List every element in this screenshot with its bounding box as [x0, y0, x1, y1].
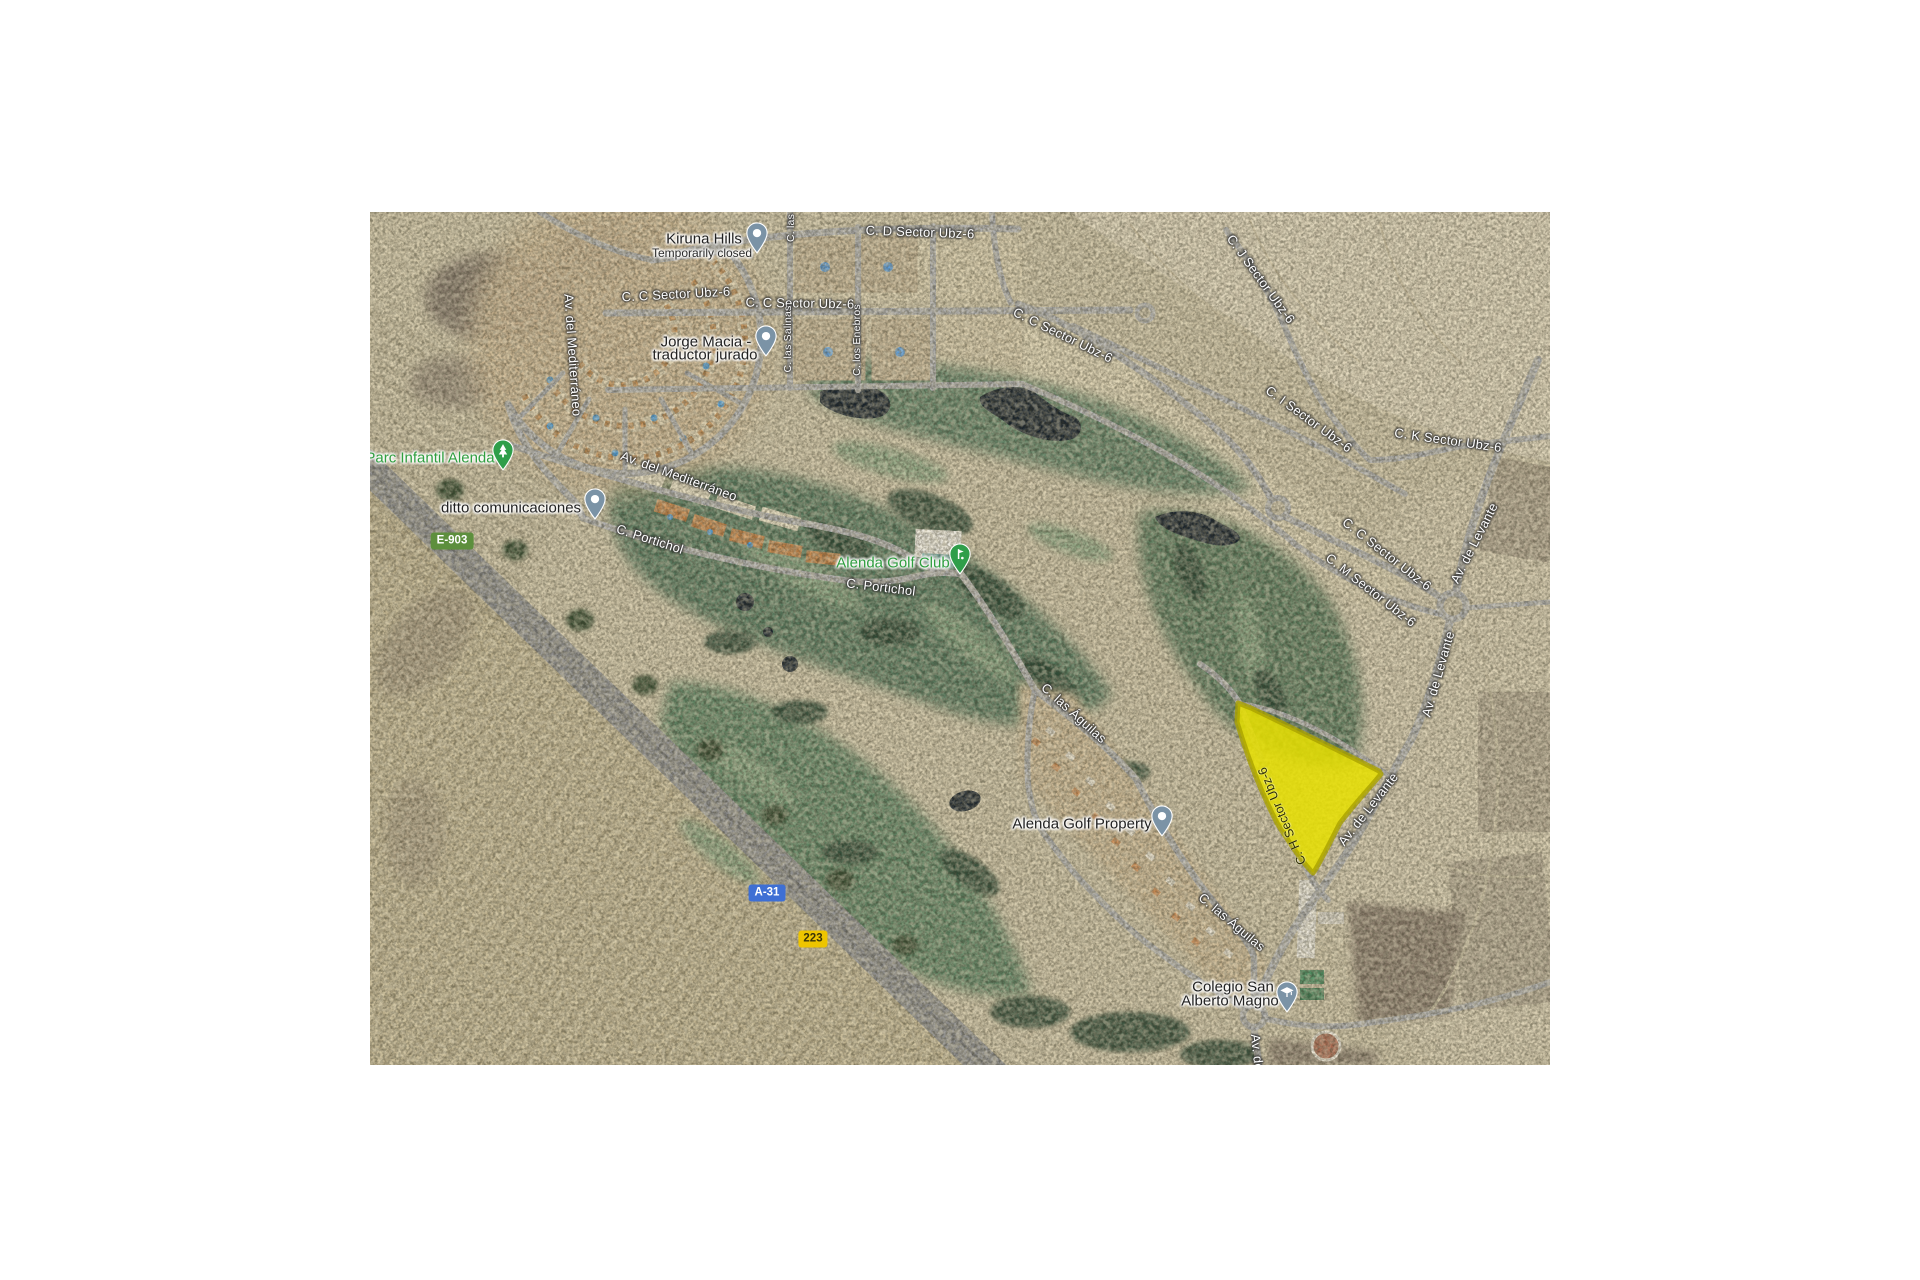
poi-colegio-line2: Alberto Magno — [1181, 993, 1279, 1010]
road-label: C. las Águilas — [1038, 680, 1109, 746]
parc-infantil-tree-pin[interactable] — [492, 439, 515, 471]
page: C. D Sector Ubz-6 C. C Sector Ubz-6 C. C… — [0, 0, 1920, 1280]
satellite-map[interactable]: C. D Sector Ubz-6 C. C Sector Ubz-6 C. C… — [370, 212, 1550, 1065]
road-label: C. las — [785, 214, 797, 242]
ditto-pin[interactable] — [584, 488, 607, 520]
road-label: Av. del Mediterráneo — [561, 293, 585, 417]
road-label: Av. del Mediterráneo — [619, 448, 739, 504]
road-label: C. D Sector Ubz-6 — [865, 223, 974, 242]
road-label: C. K Sector Ubz-6 — [1393, 425, 1502, 455]
road-label: Av. de Levante — [1419, 629, 1458, 718]
jorge-macia-pin[interactable] — [755, 325, 778, 357]
road-label: C. C Sector Ubz-6 — [745, 295, 854, 312]
poi-kiruna-hills-status: Temporarily closed — [652, 246, 752, 260]
road-label: Av. de Levante — [1447, 500, 1500, 586]
poi-golf-club-name: Alenda Golf Club — [836, 555, 949, 572]
road-label: C. los Enebros — [851, 304, 863, 376]
road-label: C. I Sector Ubz-6 — [1263, 383, 1355, 456]
road-label: C. H Sector Ubz-6 — [1255, 765, 1309, 867]
road-label: C. las Salinas — [782, 306, 794, 373]
route-shield-e903: E-903 — [431, 533, 474, 550]
poi-jorge-macia-line2: traductor jurado — [652, 347, 757, 364]
poi-kiruna-hills-name: Kiruna Hills — [666, 231, 742, 248]
poi-parc-infantil-name: Parc Infantil Alenda — [370, 450, 495, 467]
road-label: Av. de Levante — [1335, 770, 1401, 849]
poi-golf-property-name: Alenda Golf Property — [1012, 816, 1151, 833]
road-label: C. las Águilas — [1196, 890, 1269, 954]
road-label: C. C Sector Ubz-6 — [621, 284, 731, 305]
road-label: C. C Sector Ubz-6 — [1011, 304, 1115, 365]
alenda-golf-club-pin[interactable] — [949, 543, 972, 575]
kiruna-hills-pin[interactable] — [746, 222, 769, 254]
route-shield-a31: A-31 — [749, 885, 786, 902]
road-label: C. J Sector Ubz-6 — [1224, 232, 1298, 327]
route-shield-223: 223 — [798, 931, 827, 948]
poi-ditto-name: ditto comunicaciones — [441, 500, 581, 517]
road-label: C. Portichol — [615, 521, 686, 557]
colegio-school-pin[interactable] — [1276, 981, 1299, 1013]
road-label: Av. de Levante — [1248, 1033, 1272, 1065]
alenda-golf-property-pin[interactable] — [1151, 805, 1174, 837]
road-label: C. Portichol — [846, 575, 917, 598]
